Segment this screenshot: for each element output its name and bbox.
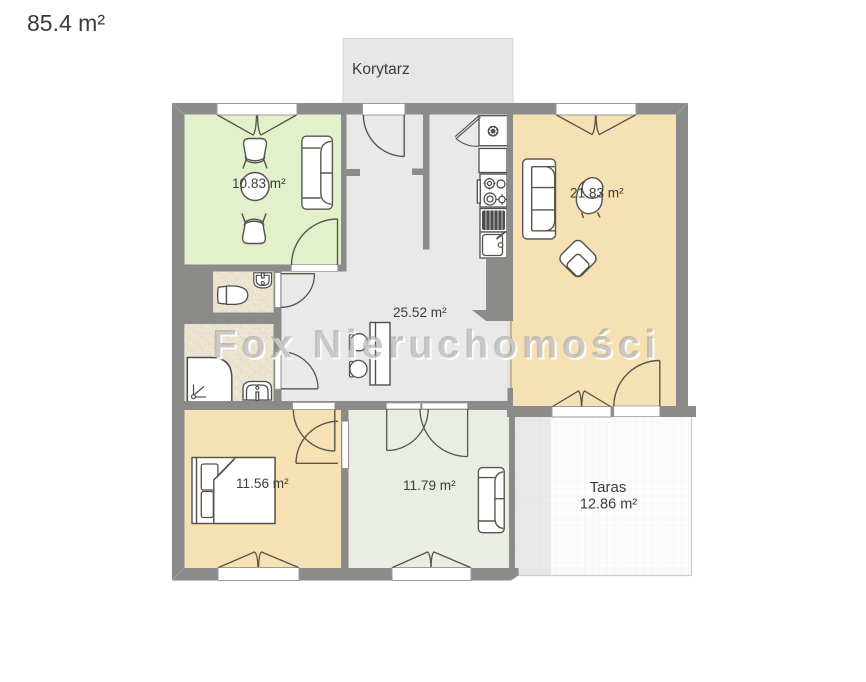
svg-text:Fox Nieruchomości: Fox Nieruchomości bbox=[212, 323, 660, 367]
svg-text:85.4 m²: 85.4 m² bbox=[27, 10, 105, 36]
svg-text:21.83 m²: 21.83 m² bbox=[570, 186, 624, 201]
svg-text:11.79 m²: 11.79 m² bbox=[403, 478, 456, 493]
svg-text:11.56 m²: 11.56 m² bbox=[236, 476, 289, 491]
svg-text:25.52 m²: 25.52 m² bbox=[393, 305, 447, 320]
svg-text:Taras: Taras bbox=[590, 479, 627, 496]
svg-text:10.83 m²: 10.83 m² bbox=[232, 176, 286, 191]
svg-text:Korytarz: Korytarz bbox=[352, 61, 410, 78]
svg-text:12.86 m²: 12.86 m² bbox=[580, 497, 637, 513]
